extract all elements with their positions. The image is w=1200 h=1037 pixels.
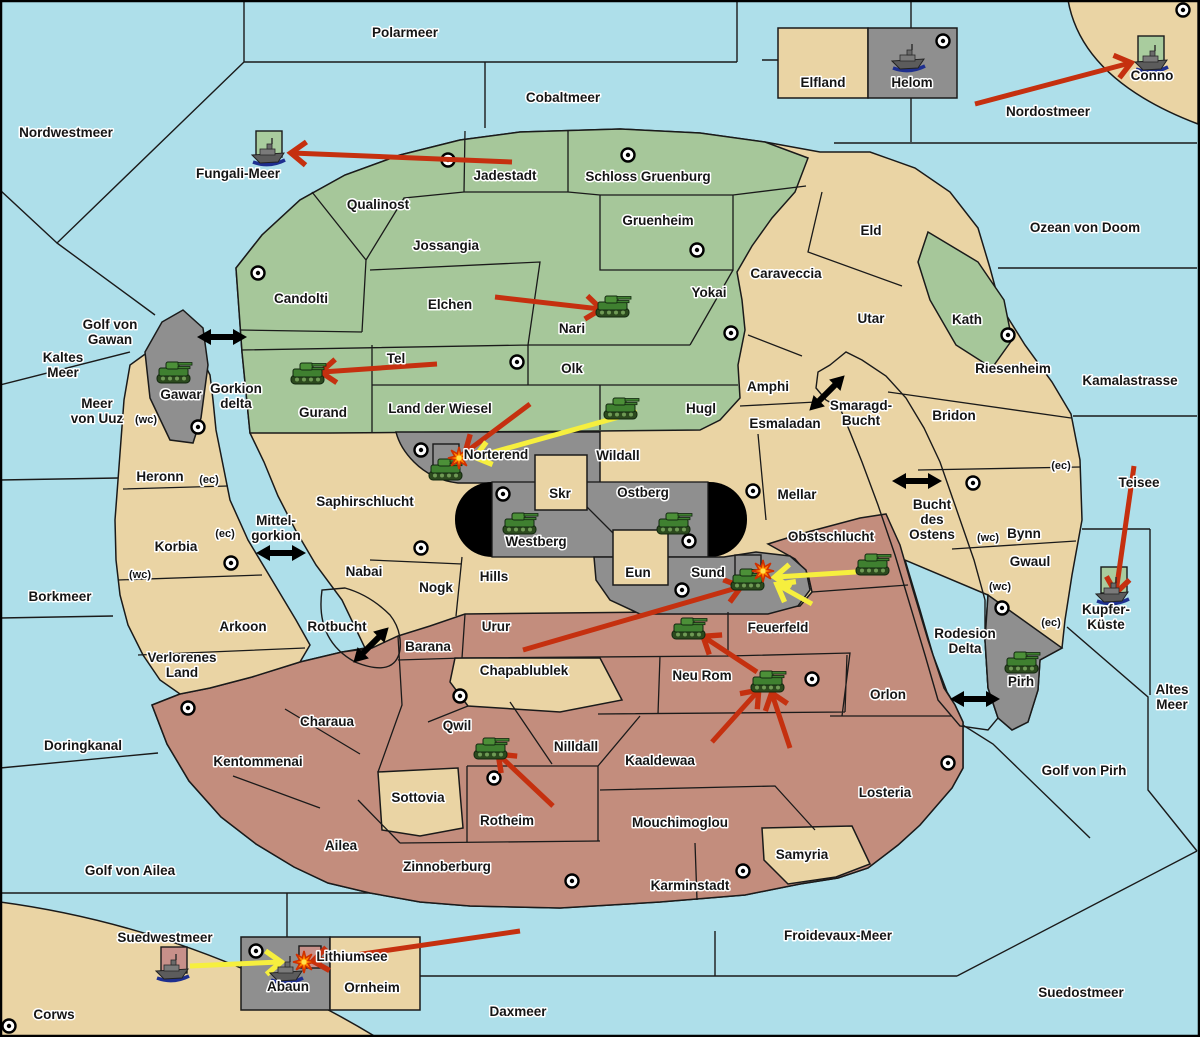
- label-losteria: Losteria: [859, 785, 912, 800]
- explosion-icon: [293, 951, 315, 973]
- game-map: PolarmeerCobaltmeerNordwestmeerFungali-M…: [0, 0, 1200, 1037]
- coast-badge: (wc): [977, 532, 999, 544]
- label-kamalastrasse: Kamalastrasse: [1082, 373, 1178, 388]
- label-kaaldewaa: Kaaldewaa: [625, 753, 695, 768]
- label-barana: Barana: [405, 639, 451, 654]
- label-zinnoberburg: Zinnoberburg: [403, 859, 491, 874]
- coast-badge: (ec): [1041, 617, 1061, 629]
- label-amphi: Amphi: [747, 379, 789, 394]
- label-rotheim: Rotheim: [480, 813, 534, 828]
- coast-badge: (ec): [1051, 460, 1071, 472]
- capital-icon: [182, 702, 195, 715]
- label-cobaltmeer: Cobaltmeer: [526, 90, 601, 105]
- capital-icon: [996, 602, 1009, 615]
- label-kaltes-meer: KaltesMeer: [43, 350, 84, 380]
- capital-icon: [415, 444, 428, 457]
- capital-icon: [691, 244, 704, 257]
- label-gwaul: Gwaul: [1010, 554, 1051, 569]
- label-golf-von-ailea: Golf von Ailea: [85, 863, 176, 878]
- label-bridon: Bridon: [932, 408, 976, 423]
- label-obstschlucht: Obstschlucht: [788, 529, 875, 544]
- label-mouchimoglou: Mouchimoglou: [632, 815, 728, 830]
- label-altes-meer: AltesMeer: [1155, 682, 1188, 712]
- capital-icon: [225, 557, 238, 570]
- label-nilldall: Nilldall: [554, 739, 598, 754]
- label-gawar: Gawar: [160, 387, 202, 402]
- label-saphirschlucht: Saphirschlucht: [316, 494, 414, 509]
- label-nordwestmeer: Nordwestmeer: [19, 125, 114, 140]
- capital-icon: [622, 149, 635, 162]
- capital-icon: [497, 488, 510, 501]
- label-golf-von-pirh: Golf von Pirh: [1042, 763, 1127, 778]
- label-karminstadt: Karminstadt: [651, 878, 730, 893]
- label-sund: Sund: [691, 565, 725, 580]
- label-nogk: Nogk: [419, 580, 453, 595]
- label-mellar: Mellar: [777, 487, 817, 502]
- label-skr: Skr: [549, 486, 572, 501]
- label-charaua: Charaua: [300, 714, 355, 729]
- label-daxmeer: Daxmeer: [489, 1004, 547, 1019]
- label-neu-rom: Neu Rom: [672, 668, 731, 683]
- label-olk: Olk: [561, 361, 583, 376]
- label-mittel-gorkion: Mittel-gorkion: [251, 513, 301, 543]
- label-eld: Eld: [860, 223, 881, 238]
- coast-badge: (wc): [989, 581, 1011, 593]
- capital-icon: [937, 35, 950, 48]
- label-kentommenai: Kentommenai: [213, 754, 302, 769]
- label-arkoon: Arkoon: [219, 619, 266, 634]
- capital-icon: [566, 875, 579, 888]
- capital-icon: [192, 421, 205, 434]
- label-heronn: Heronn: [136, 469, 183, 484]
- label-ostberg: Ostberg: [617, 485, 669, 500]
- label-doringkanal: Doringkanal: [44, 738, 122, 753]
- label-esmaladan: Esmaladan: [749, 416, 820, 431]
- label-gruenheim: Gruenheim: [622, 213, 693, 228]
- label-rotbucht: Rotbucht: [307, 619, 367, 634]
- capital-icon: [250, 945, 263, 958]
- label-nordostmeer: Nordostmeer: [1006, 104, 1091, 119]
- coast-badge: (wc): [135, 414, 157, 426]
- label-riesenheim: Riesenheim: [975, 361, 1051, 376]
- label-gurand: Gurand: [299, 405, 347, 420]
- label-wildall: Wildall: [596, 448, 639, 463]
- capital-icon: [747, 485, 760, 498]
- label-elfland: Elfland: [800, 75, 845, 90]
- capital-icon: [1177, 4, 1190, 17]
- label-eun: Eun: [625, 565, 651, 580]
- capital-icon: [1002, 329, 1015, 342]
- label-fungali-meer: Fungali-Meer: [196, 166, 281, 181]
- label-teisee: Teisee: [1118, 475, 1160, 490]
- label-hugl: Hugl: [686, 401, 716, 416]
- label-conno: Conno: [1131, 68, 1174, 83]
- label-ornheim: Ornheim: [344, 980, 400, 995]
- label-bynn: Bynn: [1007, 526, 1041, 541]
- label-sottovia: Sottovia: [391, 790, 445, 805]
- label-urur: Urur: [482, 619, 511, 634]
- label-caraveccia: Caraveccia: [750, 266, 822, 281]
- region-skr[interactable]: [535, 455, 587, 510]
- label-hills: Hills: [480, 569, 509, 584]
- capital-icon: [415, 542, 428, 555]
- label-westberg: Westberg: [505, 534, 566, 549]
- label-schloss-gruenburg: Schloss Gruenburg: [585, 169, 710, 184]
- label-helom: Helom: [891, 75, 932, 90]
- coast-badge: (ec): [199, 474, 219, 486]
- label-borkmeer: Borkmeer: [28, 589, 92, 604]
- label-feuerfeld: Feuerfeld: [748, 620, 809, 635]
- capital-icon: [967, 477, 980, 490]
- capital-icon: [511, 356, 524, 369]
- capital-icon: [676, 584, 689, 597]
- label-pirh: Pirh: [1008, 674, 1034, 689]
- label-corws: Corws: [33, 1007, 74, 1022]
- capital-icon: [806, 673, 819, 686]
- label-elchen: Elchen: [428, 297, 472, 312]
- label-norterend: Norterend: [464, 447, 529, 462]
- label-qualinost: Qualinost: [347, 197, 410, 212]
- label-lithiumsee: Lithiumsee: [316, 949, 388, 964]
- label-kath: Kath: [952, 312, 982, 327]
- label-yokai: Yokai: [691, 285, 726, 300]
- label-froidevaux-meer: Froidevaux-Meer: [784, 928, 893, 943]
- label-chapablublek: Chapablublek: [480, 663, 569, 678]
- label-tel: Tel: [387, 351, 406, 366]
- label-ailea: Ailea: [325, 838, 358, 853]
- label-korbia: Korbia: [155, 539, 198, 554]
- capital-icon: [454, 690, 467, 703]
- label-polarmeer: Polarmeer: [372, 25, 439, 40]
- label-candolti: Candolti: [274, 291, 328, 306]
- capital-icon: [737, 865, 750, 878]
- capital-icon: [725, 327, 738, 340]
- label-suedostmeer: Suedostmeer: [1038, 985, 1124, 1000]
- label-suedwestmeer: Suedwestmeer: [117, 930, 213, 945]
- capital-icon: [3, 1020, 16, 1033]
- capital-icon: [252, 267, 265, 280]
- label-golf-von-gawan: Golf vonGawan: [83, 317, 138, 347]
- coast-badge: (wc): [129, 569, 151, 581]
- label-land-der-wiesel: Land der Wiesel: [388, 401, 491, 416]
- label-qwil: Qwil: [443, 718, 472, 733]
- label-utar: Utar: [857, 311, 885, 326]
- label-samyria: Samyria: [776, 847, 829, 862]
- label-jossangia: Jossangia: [413, 238, 480, 253]
- label-kupfer-kueste: Kupfer-Küste: [1082, 602, 1130, 632]
- label-ozean-von-doom: Ozean von Doom: [1030, 220, 1140, 235]
- label-orlon: Orlon: [870, 687, 906, 702]
- label-abaun: Abaun: [267, 979, 309, 994]
- capital-icon: [942, 757, 955, 770]
- coast-badge: (ec): [215, 528, 235, 540]
- label-nabai: Nabai: [346, 564, 383, 579]
- label-nari: Nari: [559, 321, 585, 336]
- capital-icon: [488, 772, 501, 785]
- capital-icon: [683, 535, 696, 548]
- label-jadestadt: Jadestadt: [473, 168, 537, 183]
- explosion-icon: [752, 560, 774, 582]
